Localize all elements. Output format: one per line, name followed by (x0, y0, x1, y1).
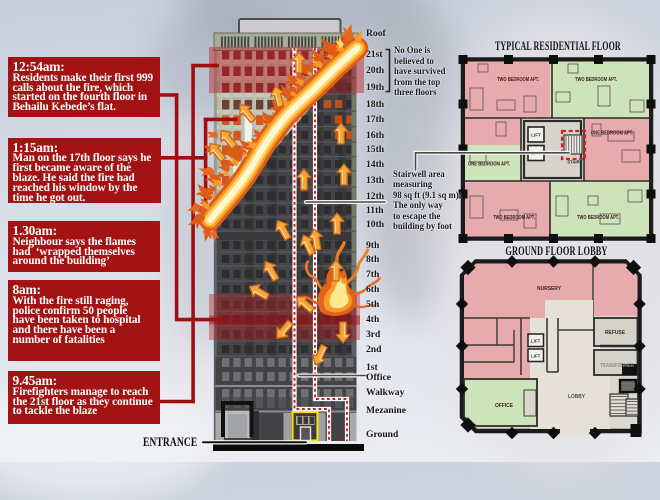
svg-text:ONE BEDROOM APT.: ONE BEDROOM APT. (468, 162, 510, 168)
svg-text:TWO BEDROOM APT.: TWO BEDROOM APT. (575, 77, 617, 83)
svg-text:ONE BEDROOM APT.: ONE BEDROOM APT. (591, 131, 633, 137)
svg-text:LOBBY: LOBBY (568, 394, 585, 400)
svg-text:REFUSE: REFUSE (605, 330, 625, 336)
svg-text:LIFT: LIFT (531, 354, 541, 359)
svg-text:NURSERY: NURSERY (537, 286, 561, 292)
svg-text:OFFICE: OFFICE (495, 403, 513, 409)
svg-text:LIFT: LIFT (531, 133, 541, 138)
svg-text:TRANSFORMER: TRANSFORMER (600, 363, 635, 369)
svg-text:LIFT: LIFT (531, 339, 541, 344)
svg-text:TWO BEDROOM APT.: TWO BEDROOM APT. (493, 215, 535, 221)
svg-text:TWO BEDROOM APT.: TWO BEDROOM APT. (577, 215, 619, 221)
svg-text:TWO BEDROOM APT.: TWO BEDROOM APT. (497, 77, 539, 83)
svg-text:STAIR: STAIR (567, 160, 579, 165)
